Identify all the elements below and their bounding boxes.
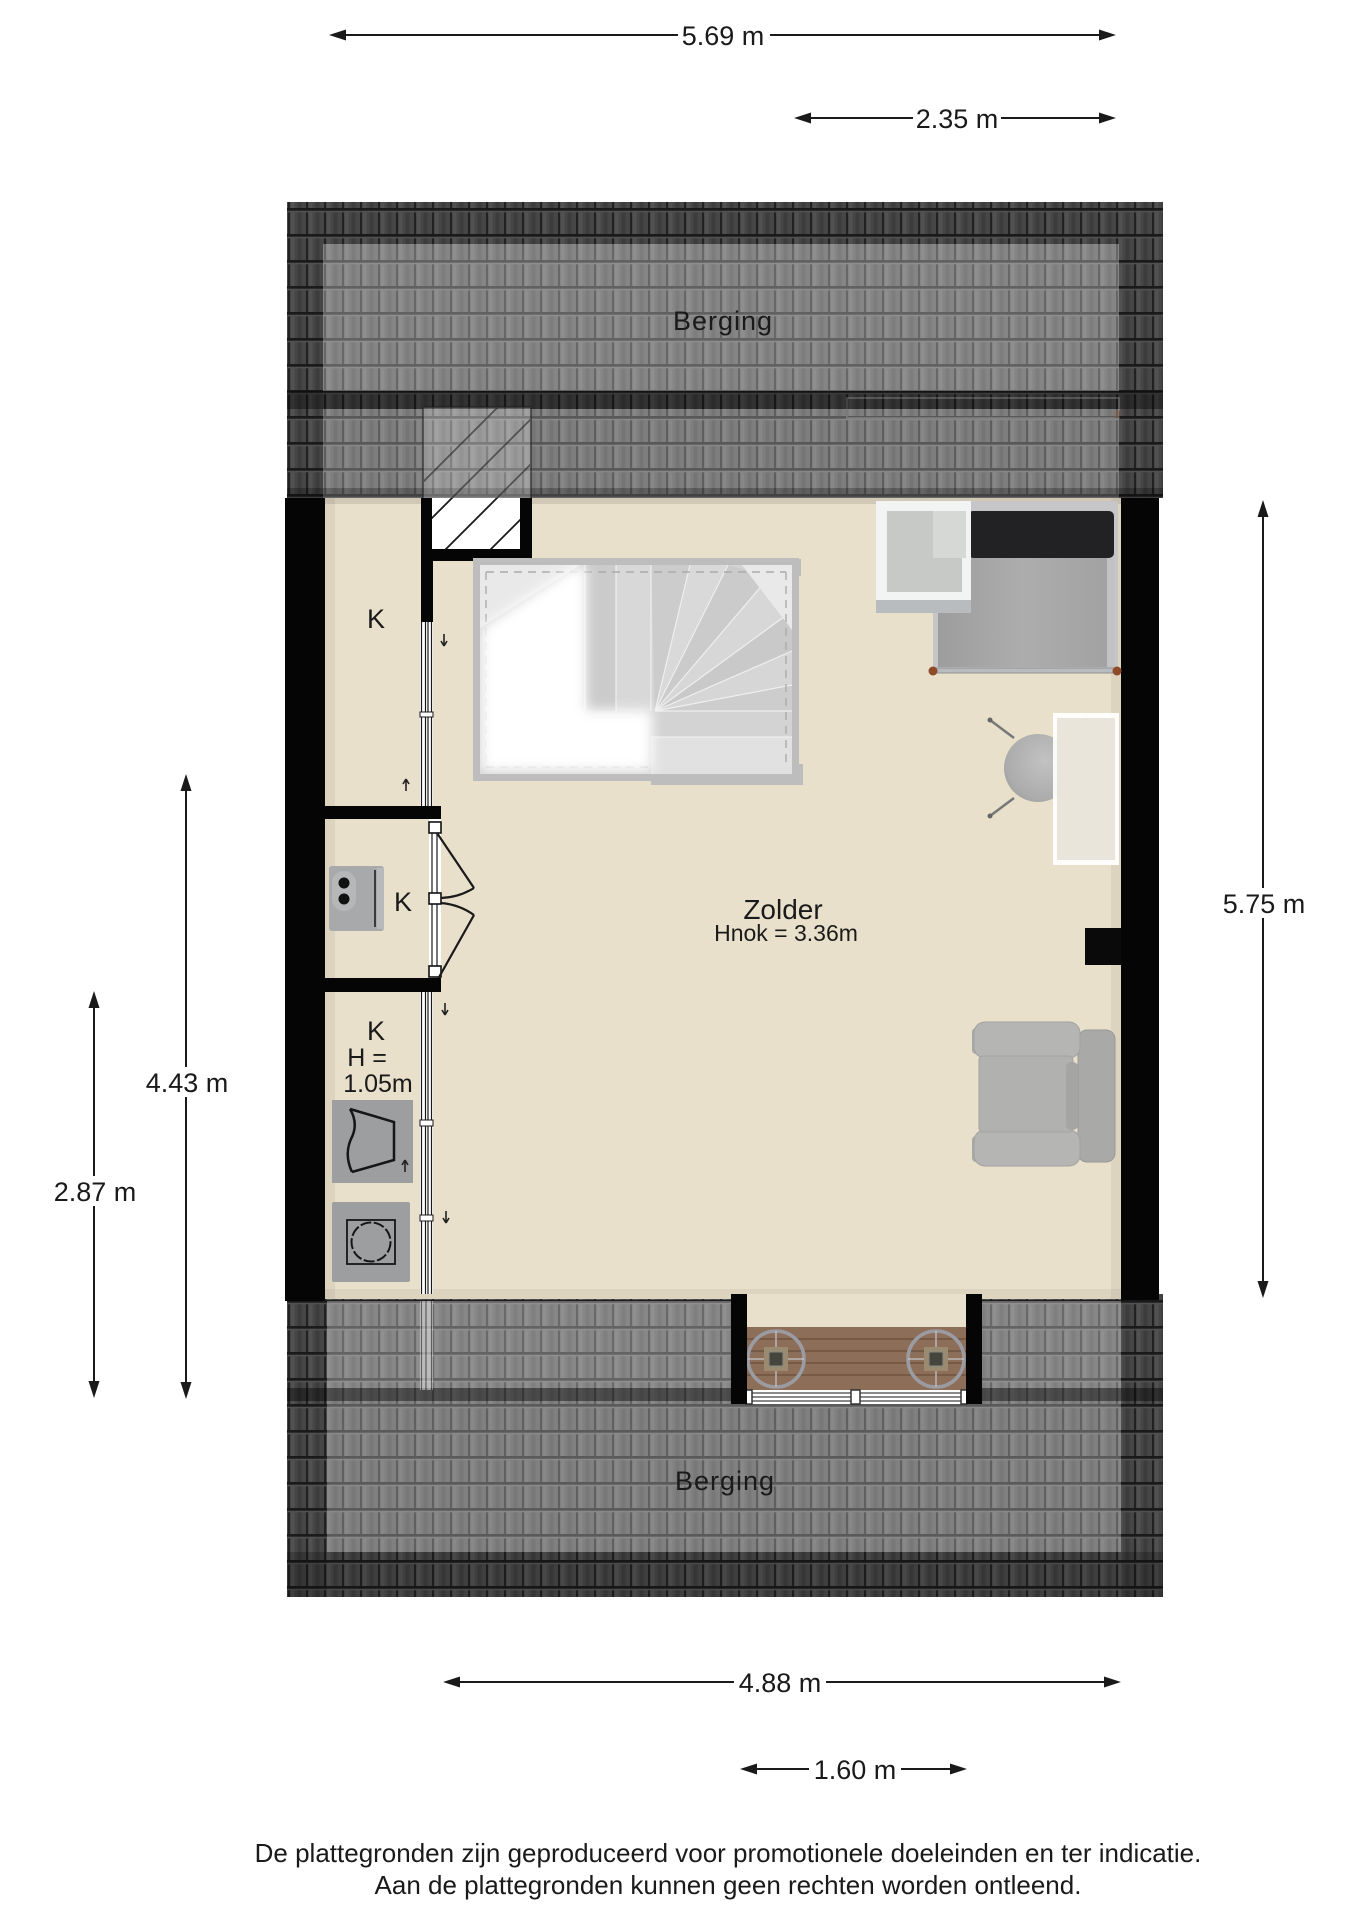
svg-text:H =: H = xyxy=(347,1044,387,1072)
svg-text:De plattegronden zijn geproduc: De plattegronden zijn geproduceerd voor … xyxy=(255,1838,1202,1868)
svg-text:4.88 m: 4.88 m xyxy=(739,1668,822,1698)
svg-text:Aan de plattegronden kunnen ge: Aan de plattegronden kunnen geen rechten… xyxy=(375,1870,1082,1900)
svg-text:1.05m: 1.05m xyxy=(343,1070,412,1098)
svg-text:Berging: Berging xyxy=(673,306,773,336)
svg-text:K: K xyxy=(394,887,412,917)
svg-text:K: K xyxy=(367,604,385,634)
svg-text:5.69 m: 5.69 m xyxy=(682,21,765,51)
svg-text:1.60 m: 1.60 m xyxy=(814,1755,897,1785)
svg-text:2.87 m: 2.87 m xyxy=(54,1177,137,1207)
svg-text:Hnok = 3.36m: Hnok = 3.36m xyxy=(714,920,858,946)
svg-text:2.35 m: 2.35 m xyxy=(916,104,999,134)
svg-text:Berging: Berging xyxy=(675,1466,775,1496)
svg-text:5.75 m: 5.75 m xyxy=(1223,889,1306,919)
svg-text:K: K xyxy=(367,1016,385,1046)
svg-text:4.43 m: 4.43 m xyxy=(146,1068,229,1098)
